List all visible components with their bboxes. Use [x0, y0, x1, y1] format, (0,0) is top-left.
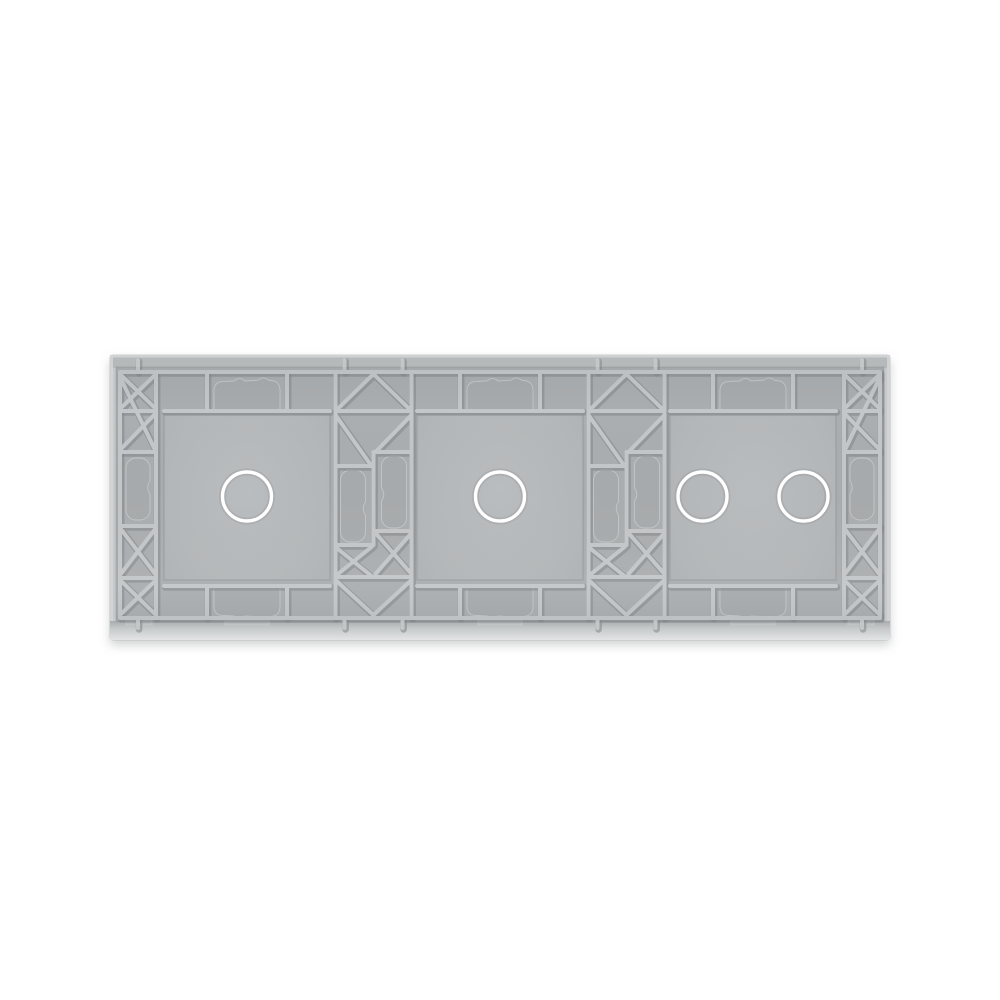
ambient-shading: [116, 367, 884, 622]
product-photo: [0, 0, 1000, 1000]
switch-panel-rear-view: [0, 0, 1000, 1000]
